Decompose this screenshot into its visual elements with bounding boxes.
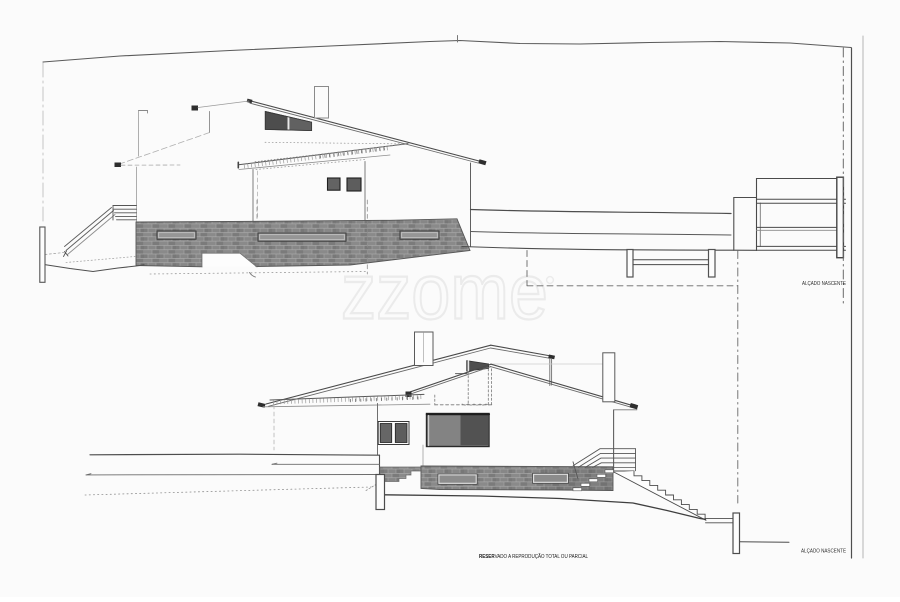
svg-text:RESERVADO A REPRODUÇÃO TOTAL O: RESERVADO A REPRODUÇÃO TOTAL OU PARCIAL: [479, 553, 588, 560]
svg-text:ALÇADO NASCENTE: ALÇADO NASCENTE: [801, 549, 846, 555]
svg-text:ALÇADO NASCENTE: ALÇADO NASCENTE: [802, 281, 846, 287]
